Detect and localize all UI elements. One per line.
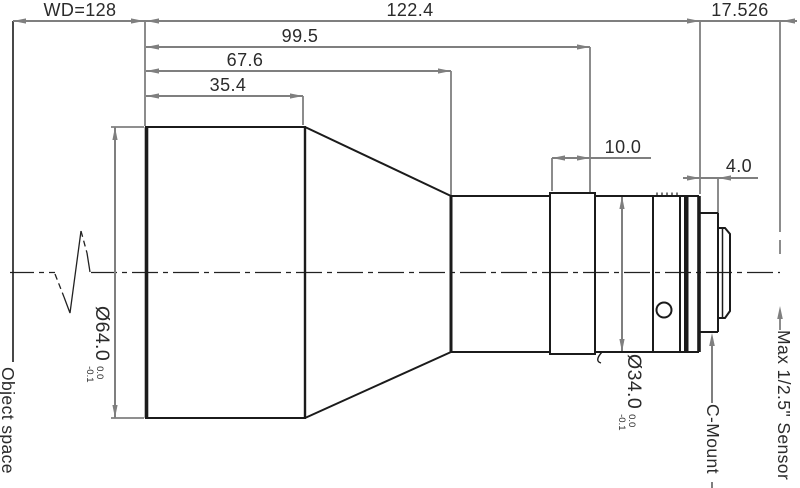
label-object-space: Object space xyxy=(0,367,18,474)
dim-focus-ring-width: 10.0 xyxy=(594,137,652,157)
dim-99-5: 99.5 xyxy=(268,26,332,46)
barrel-diameter-tol-lower: -0.1 xyxy=(615,414,625,430)
break-symbol xyxy=(55,231,90,313)
front-diameter-tol-lower: -0.1 xyxy=(83,366,93,382)
label-c-mount: C-Mount xyxy=(703,404,723,474)
set-screw xyxy=(657,303,672,318)
dim-67-6: 67.6 xyxy=(213,50,277,70)
dim-thread-length: 4.0 xyxy=(716,156,762,176)
dim-flange-distance: 17.526 xyxy=(700,0,780,20)
technical-drawing: WD=128 122.4 17.526 99.5 67.6 35.4 10.0 … xyxy=(0,0,800,488)
label-max-sensor: Max 1/2.5" Sensor xyxy=(774,330,794,480)
dim-35-4: 35.4 xyxy=(196,75,260,95)
dim-barrel-diameter: Ø34.00.0-0.1 xyxy=(615,354,645,431)
dim-total-length: 122.4 xyxy=(370,0,450,20)
sensor-arrow-icon xyxy=(777,306,783,319)
barrel-diameter-value: Ø34.0 xyxy=(623,354,645,409)
dim-front-diameter: Ø64.00.0-0.1 xyxy=(83,306,113,383)
dim-working-distance: WD=128 xyxy=(30,0,130,20)
lens-outline-drawing xyxy=(0,0,800,488)
dimension-arrows xyxy=(13,18,795,418)
front-diameter-tol-upper: 0.0 xyxy=(94,366,104,382)
front-diameter-value: Ø64.0 xyxy=(91,306,113,361)
barrel-diameter-tol-upper: 0.0 xyxy=(626,414,636,430)
